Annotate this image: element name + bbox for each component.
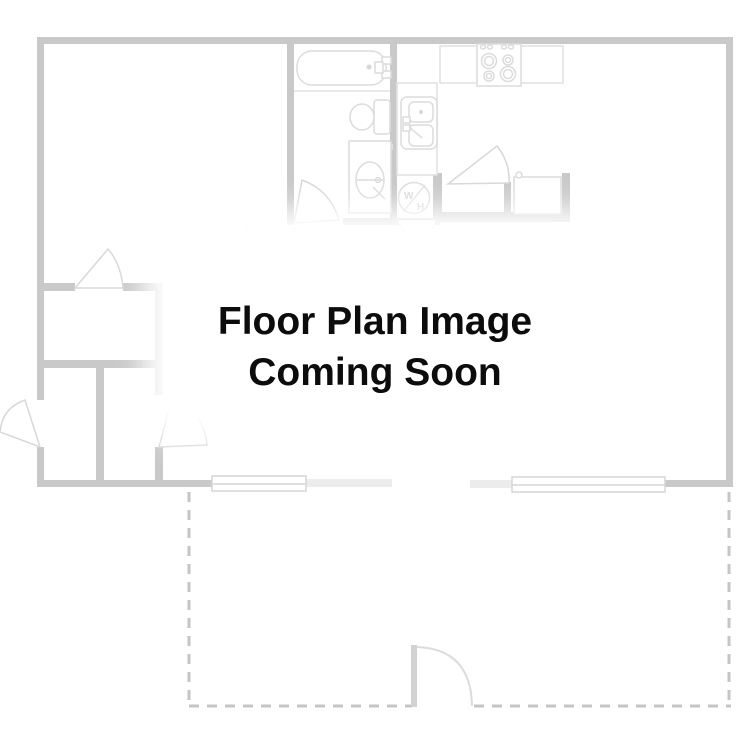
placeholder-line-1: Floor Plan Image	[0, 296, 750, 347]
patio-boundary	[189, 492, 731, 706]
kitchen-door	[448, 146, 509, 184]
patio-gate	[411, 645, 472, 707]
toilet	[350, 100, 390, 134]
floor-plan-placeholder: W H	[0, 0, 750, 750]
bathtub	[297, 51, 391, 85]
placeholder-text: Floor Plan Image Coming Soon	[0, 296, 750, 398]
windows	[212, 476, 665, 492]
closet-door	[75, 249, 123, 288]
water-heater: W H	[399, 183, 430, 214]
water-heater-label-w: W	[404, 191, 414, 202]
placeholder-line-2: Coming Soon	[0, 347, 750, 398]
window-2	[512, 477, 665, 492]
refrigerator	[514, 172, 561, 214]
stove	[477, 44, 521, 86]
water-heater-label-h: H	[417, 202, 424, 213]
entry-door	[0, 400, 40, 447]
kitchen-sink	[401, 97, 437, 149]
vanity-sink	[349, 141, 391, 213]
window-1	[212, 476, 306, 491]
